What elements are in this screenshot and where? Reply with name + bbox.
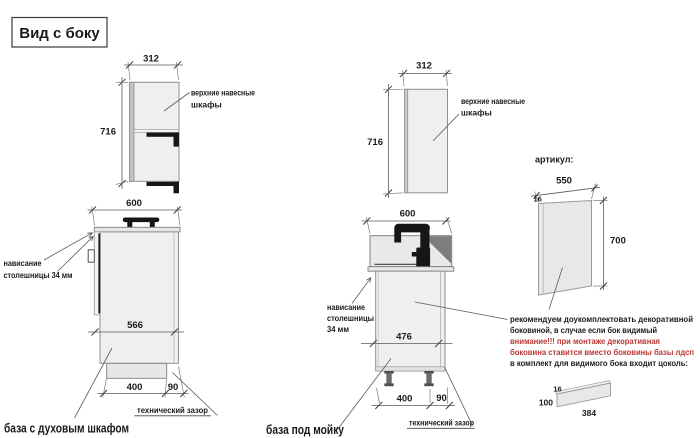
cabinet-body — [405, 89, 448, 193]
leg-stem — [386, 374, 391, 384]
technical-drawing: Вид с боку 312 716 верхние навесные шкаф… — [0, 0, 700, 438]
wall-cabinet-middle: 312 716 верхние навесные шкафы — [367, 61, 525, 199]
dim-gap: 90 — [168, 382, 179, 393]
extension-line — [179, 367, 185, 398]
sink-base-caption: база под мойку — [266, 422, 345, 437]
tech-gap-label: технический зазор — [137, 405, 208, 415]
dim-inner-depth: 476 — [396, 332, 412, 343]
handle-bar — [123, 218, 160, 223]
oven-door-gap — [98, 233, 100, 313]
leg — [424, 371, 433, 386]
extension-line — [403, 70, 405, 86]
drawing-canvas: Вид с боку 312 716 верхние навесные шкаф… — [0, 0, 700, 438]
leg-stem — [426, 374, 431, 384]
overhang-label: 34 мм — [327, 324, 349, 334]
dim-gap: 90 — [436, 393, 447, 404]
dim-plinth-height: 100 — [539, 398, 553, 408]
bracket — [174, 182, 180, 194]
dim-height: 716 — [100, 127, 116, 138]
overhang-arrow — [352, 278, 371, 304]
handle-leg — [150, 222, 155, 228]
sink-base-cabinet: 600 476 — [266, 209, 508, 438]
cabinet-body — [100, 232, 179, 363]
overhang-label: нависание — [327, 302, 365, 312]
wall-cabinet-label: шкафы — [461, 108, 492, 118]
wall-cabinet-label: верхние навесные — [191, 88, 255, 98]
bottom-panel — [376, 367, 445, 371]
page-title: Вид с боку — [19, 25, 100, 42]
wall-cabinet-label: верхние навесные — [461, 96, 525, 106]
leg — [384, 371, 393, 386]
dim-plinth-length: 384 — [582, 408, 596, 418]
faucet-lever — [412, 252, 417, 257]
cabinet-body — [376, 271, 445, 371]
wall-cabinet-label: шкафы — [191, 100, 222, 110]
dim-width: 600 — [400, 209, 416, 220]
wall-cabinet-left: 312 716 верхние навесные шкафы — [100, 54, 255, 194]
dim-width: 600 — [126, 198, 142, 209]
warning-text: боковина ставится вместо боковины базы л… — [510, 347, 694, 357]
overhang-label: столешницы 34 мм — [4, 270, 73, 280]
dim-plinth: 400 — [127, 382, 143, 393]
article-label: артикул: — [535, 155, 573, 165]
door-edge — [405, 89, 408, 193]
extension-line — [103, 379, 107, 398]
extension-line — [165, 379, 167, 398]
dim-inner-depth: 566 — [127, 320, 143, 331]
dim-panel-thickness: 16 — [534, 195, 542, 204]
note-text: в комплект для видимого бока входит цоко… — [510, 358, 688, 368]
extension-line — [377, 388, 380, 403]
oven-door-handle — [88, 250, 94, 262]
leg-foot — [424, 383, 433, 386]
note-text: рекомендуем доукомплектовать декоративно… — [510, 314, 693, 324]
overhang-arrow — [44, 233, 92, 260]
decorative-side-panel — [539, 201, 592, 296]
leader-line — [445, 367, 473, 425]
dim-panel-width: 550 — [556, 176, 572, 187]
dim-height: 716 — [367, 137, 383, 148]
leader-line — [338, 359, 392, 430]
shelf — [134, 130, 179, 133]
dim-plinth-thickness: 16 — [553, 385, 561, 394]
oven-base-cabinet: 600 566 400 90 технический зазор нависан… — [4, 198, 218, 436]
dim-width: 312 — [416, 61, 432, 72]
title-box: Вид с боку — [12, 18, 107, 48]
leader-line — [75, 348, 113, 418]
warning-text: внимание!!! при монтаже декоративная — [510, 336, 660, 346]
faucet-spout — [394, 228, 401, 243]
leg-cap — [424, 371, 433, 374]
article-section: артикул: 550 16 700 рекомендуем доукомпл… — [510, 155, 694, 418]
countertop — [368, 267, 454, 272]
note-text: боковиной, в случае если бок видимый — [510, 325, 657, 335]
handle-leg — [127, 222, 132, 228]
bracket — [174, 133, 180, 147]
dim-plinth: 400 — [397, 394, 413, 405]
oven-base-caption: база с духовым шкафом — [4, 421, 129, 436]
dim-width: 312 — [143, 54, 159, 65]
tech-gap-label: технический зазор — [409, 418, 474, 428]
overhang-label: столешницы — [327, 313, 374, 323]
leg-foot — [384, 383, 393, 386]
dim-panel-height: 700 — [610, 236, 626, 247]
faucet-body — [416, 248, 430, 269]
door-edge — [130, 82, 135, 181]
extension-line — [383, 193, 403, 194]
plinth — [107, 363, 167, 378]
overhang-label: нависание — [4, 258, 42, 268]
countertop — [94, 227, 180, 232]
leg-cap — [384, 371, 393, 374]
